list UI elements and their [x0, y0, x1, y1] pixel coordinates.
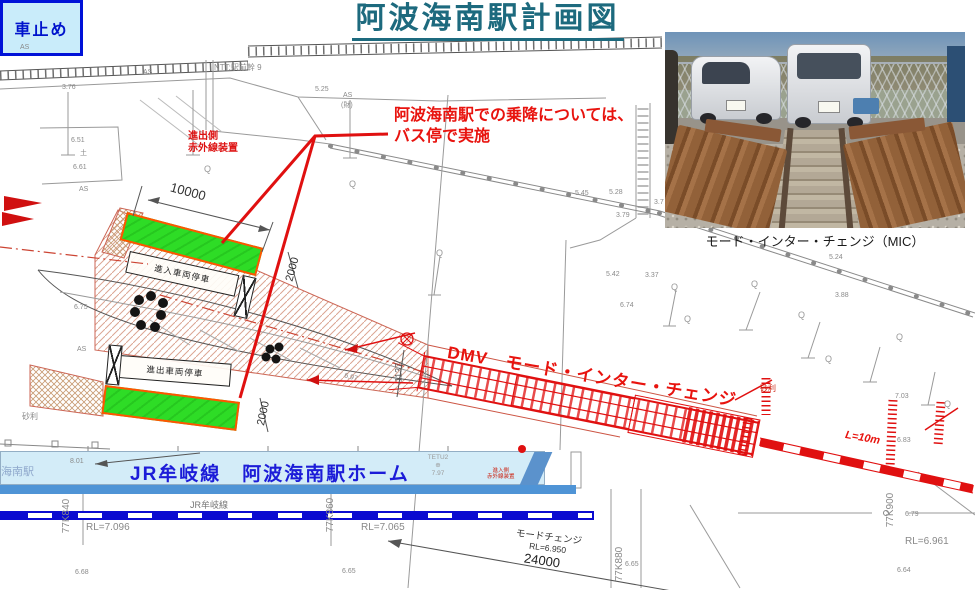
photo-van-wheel [795, 117, 811, 128]
parking-exit-label: 進出車両停車 [146, 363, 204, 379]
platform-edge-band [0, 485, 576, 494]
photo-car1-window [702, 62, 750, 84]
jr-rail-chain-line [0, 511, 594, 520]
page-title: 阿波海南駅計画図 [352, 2, 624, 41]
plan-canvas: 進入車両停車 進出車両停車 車止め [0, 0, 975, 590]
photo-car1-wheel [756, 113, 772, 124]
parking-entry-label: 進入車両停車 [153, 262, 211, 286]
photo-blue-container [853, 98, 879, 114]
cross-brace-exit [105, 344, 122, 385]
photo-train-edge [947, 46, 965, 122]
parking-box-exit: 進出車両停車 [118, 355, 231, 387]
photo-van-plate [818, 101, 840, 113]
bus-stop-area-2 [101, 385, 240, 431]
photo-van-windshield [797, 53, 861, 79]
mic-photo [665, 32, 965, 228]
photo-caption: モード・インター・チェンジ（MIC） [665, 231, 965, 250]
photo-car1-plate [726, 100, 746, 111]
photo-car-hatchback [691, 56, 781, 120]
station-platform [0, 451, 545, 485]
